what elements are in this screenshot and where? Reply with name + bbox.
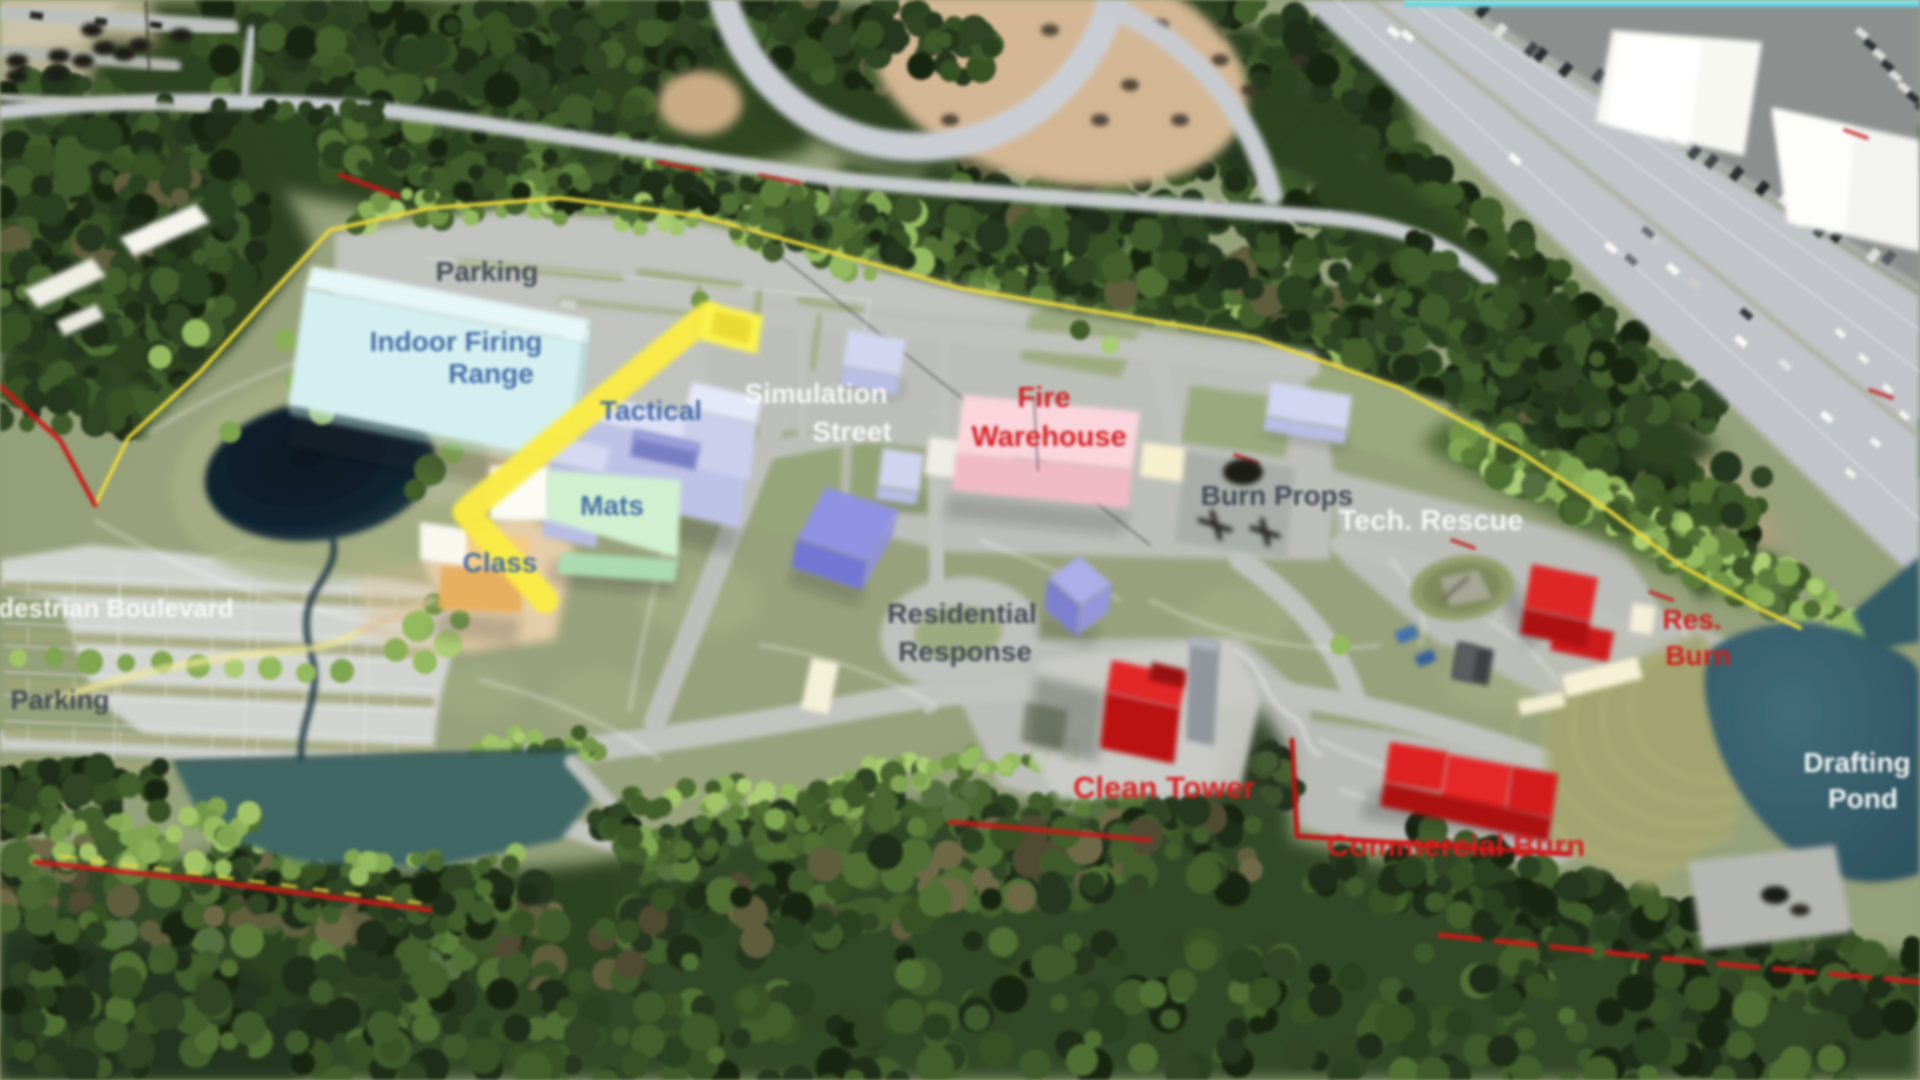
svg-text:Simulation: Simulation	[744, 378, 887, 409]
svg-text:Residential: Residential	[887, 598, 1036, 629]
svg-text:Warehouse: Warehouse	[971, 421, 1126, 453]
svg-text:Range: Range	[448, 358, 534, 389]
svg-text:Pedestrian Boulevard: Pedestrian Boulevard	[0, 593, 234, 623]
svg-text:Class: Class	[463, 547, 538, 578]
svg-text:Clean Tower: Clean Tower	[1073, 770, 1255, 805]
svg-text:Burn: Burn	[1665, 640, 1730, 671]
svg-text:Street: Street	[812, 416, 891, 447]
svg-text:Response: Response	[898, 636, 1032, 667]
svg-text:Res.: Res.	[1662, 604, 1721, 635]
svg-text:Mats: Mats	[580, 490, 644, 521]
svg-text:Indoor Firing: Indoor Firing	[370, 326, 543, 357]
svg-text:Burn Props: Burn Props	[1201, 480, 1353, 511]
svg-text:Drafting: Drafting	[1803, 747, 1910, 778]
svg-text:Fire: Fire	[1017, 382, 1070, 414]
svg-text:Tactical: Tactical	[600, 395, 702, 426]
svg-text:Tech. Rescue: Tech. Rescue	[1339, 505, 1524, 537]
svg-text:Parking: Parking	[10, 685, 109, 715]
svg-text:Pond: Pond	[1828, 783, 1898, 814]
svg-text:Parking: Parking	[436, 256, 539, 287]
svg-text:Commercial Burn: Commercial Burn	[1327, 828, 1585, 863]
